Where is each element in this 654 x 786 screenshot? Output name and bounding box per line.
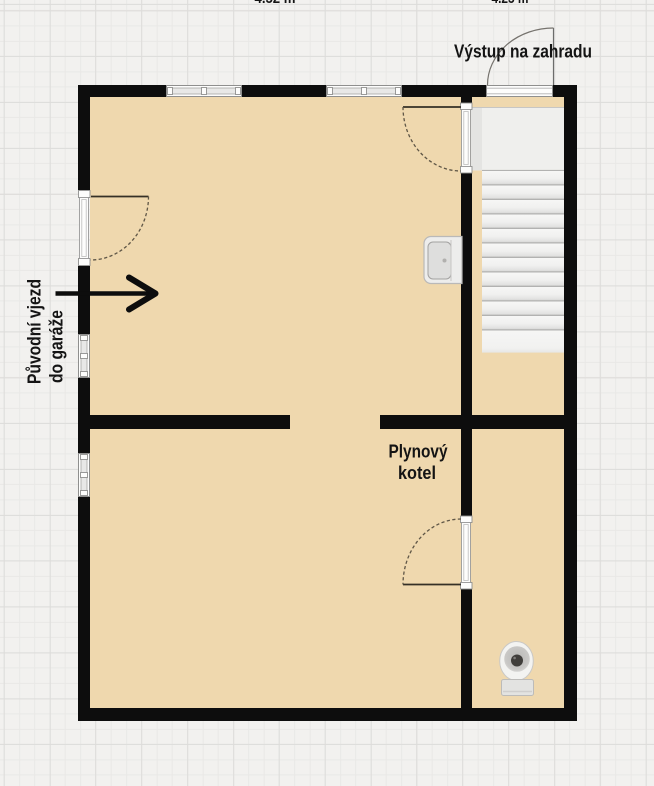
svg-text:kotel: kotel bbox=[398, 463, 436, 483]
svg-text:Plynový: Plynový bbox=[389, 442, 448, 462]
svg-text:Výstup na zahradu: Výstup na zahradu bbox=[454, 41, 592, 62]
svg-text:4.52 m: 4.52 m bbox=[255, 0, 296, 7]
svg-text:Původní vjezd: Původní vjezd bbox=[24, 279, 45, 384]
svg-text:do garáže: do garáže bbox=[46, 310, 67, 383]
svg-text:4.25 m: 4.25 m bbox=[492, 0, 529, 7]
